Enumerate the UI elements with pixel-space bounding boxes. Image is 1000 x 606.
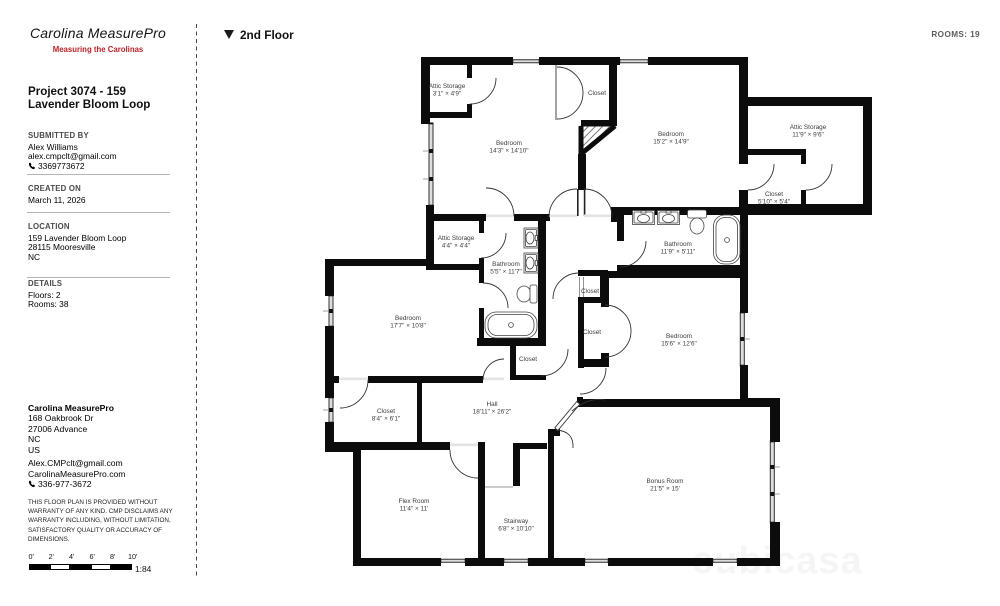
svg-text:Hall: Hall [486,401,497,408]
svg-text:Closet: Closet [583,329,601,336]
svg-text:5'10" × 5'4": 5'10" × 5'4" [758,199,790,206]
svg-text:Flex Room: Flex Room [399,498,430,505]
svg-text:Closet: Closet [765,191,783,198]
svg-text:Closet: Closet [581,288,599,295]
svg-text:6'8" × 10'10": 6'8" × 10'10" [498,526,534,533]
svg-text:11'4" × 11': 11'4" × 11' [400,506,429,513]
svg-text:Attic Storage: Attic Storage [429,83,466,90]
svg-text:Closet: Closet [588,90,606,97]
svg-text:5'5" × 11'7": 5'5" × 11'7" [490,269,522,276]
svg-text:17'7" × 10'8": 17'7" × 10'8" [390,323,426,330]
svg-text:11'9" × 9'6": 11'9" × 9'6" [792,132,824,139]
svg-text:4'4" × 4'4": 4'4" × 4'4" [442,243,470,250]
svg-text:8'4" × 6'1": 8'4" × 6'1" [372,416,400,423]
svg-text:Bedroom: Bedroom [666,333,692,340]
svg-text:Bathroom: Bathroom [492,261,520,268]
svg-text:14'3" × 14'10": 14'3" × 14'10" [489,148,528,155]
svg-text:Bedroom: Bedroom [395,315,421,322]
svg-text:18'11" × 26'2": 18'11" × 26'2" [473,409,512,416]
svg-text:Attic Storage: Attic Storage [790,124,827,131]
svg-text:11'9" × 5'11": 11'9" × 5'11" [661,249,696,256]
svg-text:Attic Storage: Attic Storage [438,235,475,242]
svg-text:Closet: Closet [519,356,537,363]
svg-text:15'2" × 14'9": 15'2" × 14'9" [653,139,689,146]
svg-text:Stairway: Stairway [504,518,529,525]
svg-text:Bonus Room: Bonus Room [647,478,684,485]
svg-text:3'1" × 4'9": 3'1" × 4'9" [433,91,461,98]
svg-text:21'5" × 15': 21'5" × 15' [650,486,680,493]
svg-text:Bathroom: Bathroom [664,241,692,248]
svg-text:Bedroom: Bedroom [496,140,522,147]
svg-text:Closet: Closet [377,408,395,415]
svg-text:Bedroom: Bedroom [658,131,684,138]
svg-text:15'6" × 12'6": 15'6" × 12'6" [661,341,697,348]
